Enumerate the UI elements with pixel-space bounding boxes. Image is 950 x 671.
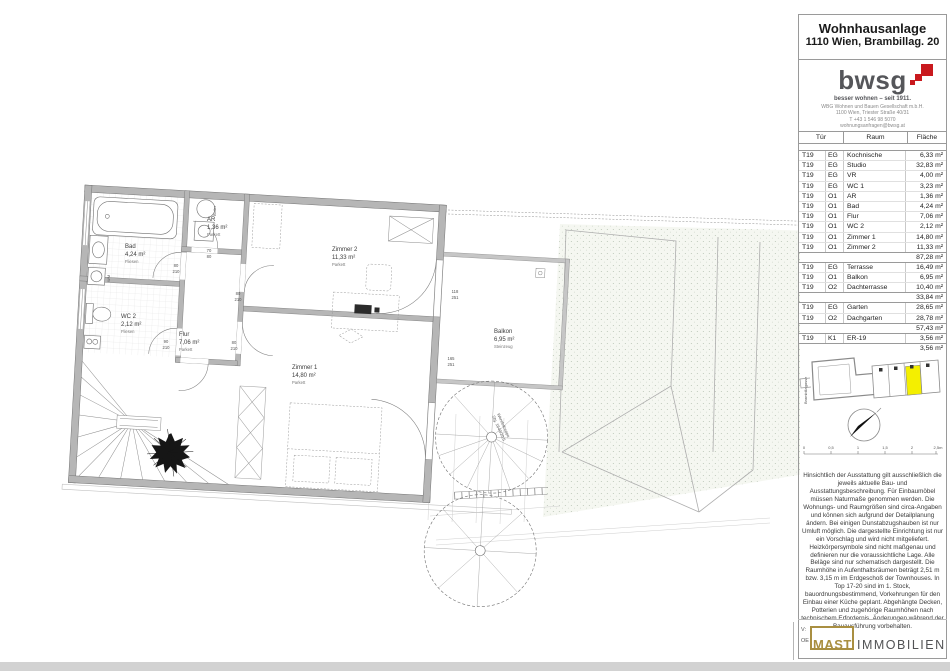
street-label: Brambillagasse: [803, 376, 808, 404]
table-cell: O2: [825, 314, 843, 323]
room-label-zimmer1: Zimmer 1 14,80 m² Parkett: [292, 365, 318, 385]
washing-machine: [87, 267, 105, 285]
footer-v-label: V:: [801, 627, 806, 633]
table-cell: Zimmer 1: [843, 233, 905, 242]
svg-text:14,80 m²: 14,80 m²: [292, 373, 316, 379]
table-cell: Flur: [843, 212, 905, 221]
room-label-ar: AR 1,36 m² Parkett: [207, 217, 227, 237]
room-label-zimmer2: Zimmer 2 11,33 m² Parkett: [332, 247, 358, 267]
wardrobe: [252, 203, 282, 248]
svg-text:1,5: 1,5: [882, 445, 888, 450]
table-cell: Terrasse: [843, 263, 905, 272]
dim-label: 210: [173, 269, 181, 274]
table-cell: T19: [799, 233, 825, 242]
table-cell: T19: [799, 243, 825, 252]
svg-text:2: 2: [911, 445, 914, 450]
drain-box: [536, 268, 545, 277]
table-cell: T19: [799, 314, 825, 323]
room-label-balkon: Balkon 6,95 m² Steinzeug: [494, 329, 514, 349]
group-subtotal: 57,43 m²: [798, 324, 947, 333]
spiral-stair-2: [421, 492, 539, 610]
toilet-tank: [85, 303, 93, 323]
table-cell: Balkon: [843, 273, 905, 282]
dim-label: 165: [448, 356, 456, 361]
pillow: [293, 455, 330, 483]
scale-bar: 0 0,5 1 1,5 2 2,5m: [803, 445, 943, 454]
furniture-dashed: [239, 203, 404, 492]
key-plan: Brambillagasse 0 0,5 1 1: [798, 342, 946, 470]
table-cell: 2,12 m²: [905, 222, 946, 231]
project-address: 1110 Wien, Brambillag. 20: [799, 36, 946, 49]
table-row: T19O1Bad4,24 m²: [799, 202, 946, 212]
table-cell: Garten: [843, 303, 905, 312]
sink: [89, 235, 109, 264]
table-cell: T19: [799, 161, 825, 170]
table-row: T19EGKochnische6,33 m²: [799, 151, 946, 161]
svg-text:WC 2: WC 2: [121, 314, 137, 320]
dimension-labels: 80 210 80 210 80 210 90 210 118 251 165 …: [163, 248, 460, 367]
svg-text:6,95 m²: 6,95 m²: [494, 337, 514, 343]
dim-label: 90: [164, 339, 169, 344]
bwsg-logo: bwsg: [838, 66, 906, 96]
svg-text:Fliesen: Fliesen: [121, 329, 135, 334]
stool: [339, 328, 364, 343]
table-cell: Bad: [843, 202, 905, 211]
group-subtotal: 33,84 m²: [798, 293, 947, 302]
svg-text:11,33 m²: 11,33 m²: [332, 255, 355, 261]
table-cell: 4,00 m²: [905, 171, 946, 180]
dim-label: 80: [236, 291, 241, 296]
svg-text:2,12 m²: 2,12 m²: [121, 322, 141, 328]
svg-text:7,06 m²: 7,06 m²: [179, 340, 199, 346]
table-cell: T19: [799, 212, 825, 221]
table-row: T19O2Dachgarten28,78 m²: [799, 314, 946, 323]
table-row: T19O1Zimmer 114,80 m²: [799, 233, 946, 243]
footer-vline: [793, 622, 794, 660]
table-cell: T19: [799, 192, 825, 201]
svg-text:0: 0: [803, 445, 806, 450]
table-row: T19EGTerrasse16,49 m²: [799, 263, 946, 273]
table-cell: O1: [825, 212, 843, 221]
svg-text:1: 1: [857, 445, 860, 450]
table-cell: 6,33 m²: [905, 151, 946, 160]
tv-unit: [354, 304, 371, 314]
balcony: [436, 252, 569, 390]
table-cell: O1: [825, 202, 843, 211]
table-cell: 10,40 m²: [905, 283, 946, 292]
table-cell: 32,83 m²: [905, 161, 946, 170]
table-cell: 16,49 m²: [905, 263, 946, 272]
site-buildings: [800, 358, 940, 400]
svg-text:2,5m: 2,5m: [934, 445, 944, 450]
table-cell: O1: [825, 243, 843, 252]
table-cell: Dachgarten: [843, 314, 905, 323]
title-block-panel: Wohnhausanlage 1110 Wien, Brambillag. 20…: [798, 0, 950, 671]
table-cell: O2: [825, 283, 843, 292]
table-cell: O1: [825, 222, 843, 231]
table-cell: EG: [825, 303, 843, 312]
table-cell: T19: [799, 182, 825, 191]
table-cell: EG: [825, 171, 843, 180]
table-row: T19EGVR4,00 m²: [799, 171, 946, 181]
table-row: T19O1AR1,36 m²: [799, 192, 946, 202]
table-cell: AR: [843, 192, 905, 201]
bwsg-address: WBG Wohnen und Bauen Gesellschaft m.b.H.…: [799, 104, 946, 129]
table-cell: T19: [799, 171, 825, 180]
bwsg-logo-square-icon: [921, 64, 933, 76]
svg-text:Parkett: Parkett: [207, 232, 221, 237]
table-cell: Zimmer 2: [843, 243, 905, 252]
dim-label: 210: [231, 346, 239, 351]
svg-text:Parkett: Parkett: [332, 262, 346, 267]
col-header-raum: Raum: [843, 132, 907, 143]
table-cell: EG: [825, 161, 843, 170]
pillow: [335, 457, 372, 485]
table-row: T19O1Balkon6,95 m²: [799, 273, 946, 283]
area-table: Tür Raum Fläche T19EGKochnische6,33 m²T1…: [798, 131, 947, 353]
table-cell: EG: [825, 182, 843, 191]
table-cell: T19: [799, 222, 825, 231]
table-cell: 1,36 m²: [905, 192, 946, 201]
table-group: T19EGGarten28,65 m²T19O2Dachgarten28,78 …: [798, 302, 947, 323]
table-cell: T19: [799, 303, 825, 312]
table-row: T19O1Zimmer 211,33 m²: [799, 243, 946, 252]
spiral-stair-1: [433, 378, 551, 496]
svg-text:Steinzeug: Steinzeug: [494, 344, 513, 349]
dim-label: 80: [174, 263, 179, 268]
developer-logo-box: bwsg besser wohnen – seit 1911. WBG Wohn…: [798, 59, 947, 133]
svg-text:AR: AR: [207, 217, 216, 223]
svg-text:4,24 m²: 4,24 m²: [125, 252, 145, 258]
table-cell: T19: [799, 273, 825, 282]
group-subtotal: 87,28 m²: [798, 253, 947, 262]
table-row: T19O1WC 22,12 m²: [799, 222, 946, 232]
stair-landing: [116, 415, 161, 430]
table-group: T19EGKochnische6,33 m²T19EGStudio32,83 m…: [798, 150, 947, 253]
floor-plan: Bad 4,24 m² Fliesen WC 2 2,12 m² Fliesen…: [0, 0, 800, 671]
disclaimer-text: Hinsichtlich der Ausstattung gilt aussch…: [801, 472, 944, 631]
svg-text:Zimmer 1: Zimmer 1: [292, 365, 318, 371]
table-cell: T19: [799, 151, 825, 160]
table-cell: O1: [825, 273, 843, 282]
table-cell: 14,80 m²: [905, 233, 946, 242]
table-cell: 28,78 m²: [905, 314, 946, 323]
room-label-flur: Flur 7,06 m² Parkett: [179, 332, 199, 352]
table-row: T19O1Flur7,06 m²: [799, 212, 946, 222]
dim-label: 80: [232, 340, 237, 345]
wm-label: WM: [106, 275, 111, 282]
project-header: Wohnhausanlage 1110 Wien, Brambillag. 20: [798, 14, 947, 60]
table-cell: 3,23 m²: [905, 182, 946, 191]
table-cell: EG: [825, 151, 843, 160]
col-header-tuer: Tür: [799, 132, 843, 143]
table-cell: 28,65 m²: [905, 303, 946, 312]
area-table-header: Tür Raum Fläche: [798, 131, 947, 144]
boiler-label: Boiler: [212, 205, 217, 216]
svg-text:Bad: Bad: [125, 244, 136, 250]
dim-label: 210: [235, 297, 243, 302]
table-cell: VR: [843, 171, 905, 180]
area-table-body: T19EGKochnische6,33 m²T19EGStudio32,83 m…: [798, 150, 947, 353]
svg-text:Parkett: Parkett: [292, 380, 306, 385]
chair: [366, 264, 392, 291]
table-cell: WC 1: [843, 182, 905, 191]
table-cell: EG: [825, 263, 843, 272]
table-group: T19EGTerrasse16,49 m²T19O1Balkon6,95 m²T…: [798, 262, 947, 294]
dim-label: 118: [452, 289, 459, 294]
table-cell: O1: [825, 233, 843, 242]
project-title: Wohnhausanlage: [799, 22, 946, 36]
table-cell: T19: [799, 283, 825, 292]
table-row: T19EGWC 13,23 m²: [799, 182, 946, 192]
table-cell: WC 2: [843, 222, 905, 231]
svg-text:Flur: Flur: [179, 332, 189, 338]
svg-text:1,36 m²: 1,36 m²: [207, 225, 227, 231]
footer-oe-label: OE: [801, 638, 809, 644]
north-arrow-icon: [848, 408, 881, 441]
table-cell: 7,06 m²: [905, 212, 946, 221]
svg-text:0,5: 0,5: [828, 445, 834, 450]
bwsg-logo-text: bwsg: [838, 65, 906, 95]
table-cell: Studio: [843, 161, 905, 170]
table-row: T19EGStudio32,83 m²: [799, 161, 946, 171]
table-cell: Dachterrasse: [843, 283, 905, 292]
mast-logo-text: MAST: [813, 637, 852, 652]
table-row: T19EGGarten28,65 m²: [799, 303, 946, 313]
table-cell: 6,95 m²: [905, 273, 946, 282]
table-cell: 4,24 m²: [905, 202, 946, 211]
svg-text:Parkett: Parkett: [179, 347, 193, 352]
table-cell: T19: [799, 202, 825, 211]
table-row: T19O2Dachterrasse10,40 m²: [799, 283, 946, 292]
dim-label: 251: [452, 295, 460, 300]
bed: [285, 403, 382, 492]
dim-label: 70: [207, 248, 212, 253]
tree: [146, 428, 195, 477]
dim-label: 80: [207, 254, 212, 259]
winder-stair: [76, 361, 235, 484]
svg-text:Balkon: Balkon: [494, 329, 512, 335]
hand-basin: [84, 335, 101, 349]
bwsg-tagline: besser wohnen – seit 1911.: [799, 96, 946, 102]
table-cell: 11,33 m²: [905, 243, 946, 252]
highlighted-unit: [906, 365, 922, 395]
svg-text:Fliesen: Fliesen: [125, 259, 139, 264]
dim-label: 251: [448, 362, 456, 367]
table-cell: Kochnische: [843, 151, 905, 160]
footer-divider: [798, 619, 947, 620]
dim-label: 210: [163, 345, 171, 350]
svg-text:Zimmer 2: Zimmer 2: [332, 247, 358, 253]
table-cell: T19: [799, 263, 825, 272]
table-cell: O1: [825, 192, 843, 201]
immobilien-logo-text: IMMOBILIEN: [857, 638, 946, 652]
page-edge-band: [0, 662, 950, 671]
col-header-flaeche: Fläche: [907, 132, 946, 143]
fence-line: [448, 210, 800, 227]
